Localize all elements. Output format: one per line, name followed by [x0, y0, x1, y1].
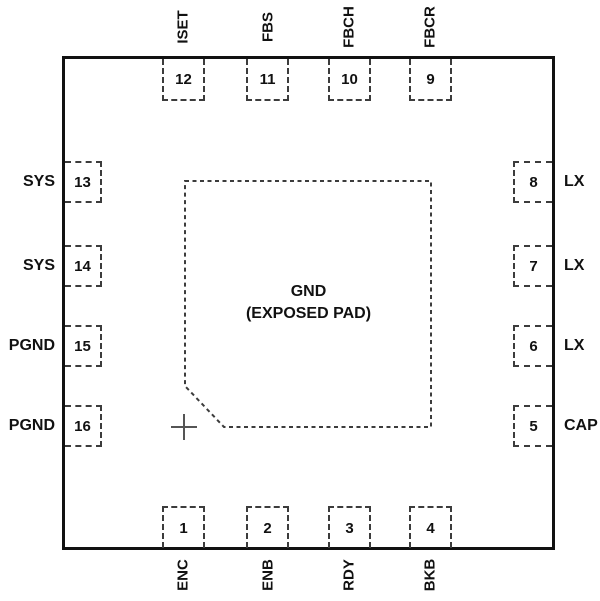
pin-label-rdy: RDY: [341, 559, 358, 591]
pin-label-enc: ENC: [175, 559, 192, 591]
pin-label-sys-13: SYS: [23, 171, 55, 193]
pin-label-pgnd-16: PGND: [9, 415, 55, 437]
pin-label-pgnd-15: PGND: [9, 335, 55, 357]
pinout-diagram: GND (EXPOSED PAD) 12 11 10 9 ISET FBS FB…: [0, 0, 600, 601]
pin-label-fbcr: FBCR: [422, 6, 439, 48]
exposed-pad-label-line2: (EXPOSED PAD): [198, 303, 419, 325]
pin-number: 3: [345, 520, 353, 537]
pin-number: 1: [179, 520, 187, 537]
pin-label-lx-7: LX: [564, 255, 584, 277]
pin-box-2: 2: [246, 506, 289, 548]
pin-number: 6: [529, 338, 537, 355]
pin-box-10: 10: [328, 59, 371, 101]
pin-label-bkb: BKB: [422, 559, 439, 592]
pin-number: 5: [529, 418, 537, 435]
pin-label-lx-8: LX: [564, 171, 584, 193]
pin-number: 4: [426, 520, 434, 537]
pin-number: 10: [341, 71, 358, 88]
pin-box-5: 5: [513, 405, 552, 447]
pin-label-enb: ENB: [260, 559, 277, 591]
pin-label-cap-5: CAP: [564, 415, 598, 437]
pin-box-3: 3: [328, 506, 371, 548]
pin-number: 16: [74, 418, 91, 435]
pin-label-iset: ISET: [175, 10, 192, 43]
pin-label-sys-14: SYS: [23, 255, 55, 277]
pin-number: 14: [74, 258, 91, 275]
pin-box-16: 16: [65, 405, 102, 447]
pin-box-8: 8: [513, 161, 552, 203]
pin-number: 12: [175, 71, 192, 88]
pin-number: 9: [426, 71, 434, 88]
pin-label-fbch: FBCH: [341, 6, 358, 48]
pin-number: 15: [74, 338, 91, 355]
pin-label-fbs: FBS: [260, 12, 277, 42]
pin-number: 8: [529, 174, 537, 191]
pin-box-14: 14: [65, 245, 102, 287]
pin-box-1: 1: [162, 506, 205, 548]
pin-number: 13: [74, 174, 91, 191]
pin-box-9: 9: [409, 59, 452, 101]
pin-box-15: 15: [65, 325, 102, 367]
exposed-pad-label-line1: GND: [198, 281, 419, 303]
pin-number: 2: [263, 520, 271, 537]
pin-box-12: 12: [162, 59, 205, 101]
pin-box-13: 13: [65, 161, 102, 203]
exposed-pad-label: GND (EXPOSED PAD): [198, 281, 419, 325]
pin-box-7: 7: [513, 245, 552, 287]
pin-box-6: 6: [513, 325, 552, 367]
pin-box-11: 11: [246, 59, 289, 101]
pin-number: 7: [529, 258, 537, 275]
pin-number: 11: [260, 71, 276, 88]
pin-label-lx-6: LX: [564, 335, 584, 357]
pin-box-4: 4: [409, 506, 452, 548]
